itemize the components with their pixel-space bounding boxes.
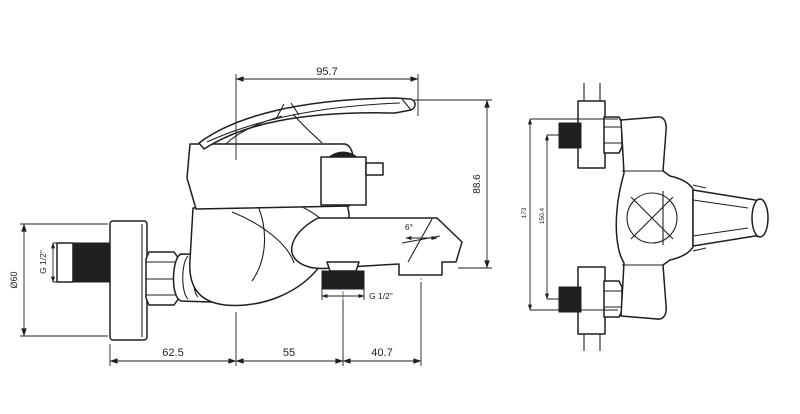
side-bottom-thread: [559, 287, 581, 312]
dim-center-to-outlet-label: 55: [283, 347, 295, 359]
side-view: [559, 83, 768, 351]
side-bottom-hex-nut: [604, 281, 622, 317]
faucet-technical-drawing: 95.7 88.6 Ø60 G 1/2" 62.5 55 40.7 G 1/2"…: [0, 0, 800, 414]
lever-handle: [199, 98, 415, 149]
side-handle-end: [752, 199, 768, 237]
inlet-nipple: [57, 243, 73, 282]
side-bottom-flange: [578, 267, 605, 334]
side-body: [616, 117, 693, 319]
dim-outlet-to-spout-label: 40.7: [371, 347, 392, 359]
shower-outlet-step: [327, 262, 359, 271]
dim-overall-height-label: 173: [521, 207, 528, 218]
side-top-thread: [559, 123, 581, 148]
shower-outlet-thread: [322, 271, 364, 289]
dim-height-label: 88.6: [472, 174, 483, 194]
dim-shower-outlet-thread-label: G 1/2": [369, 291, 393, 301]
inlet-thread: [73, 243, 110, 282]
diverter-knob: [321, 157, 366, 205]
front-view: [57, 98, 462, 340]
dim-150-extensions: [547, 135, 562, 299]
side-top-hex-nut: [604, 117, 622, 153]
dim-wall-to-center-label: 62.5: [162, 347, 183, 359]
dim-spout-angle-label: 6°: [405, 222, 413, 232]
diverter-knob-tab: [366, 163, 383, 175]
dim-handle-width-label: 95.7: [316, 66, 337, 78]
spout: [292, 218, 462, 275]
dim-flange-diameter-label: Ø60: [9, 271, 19, 288]
dim-inlet-spacing-label: 150.4: [539, 207, 546, 224]
drawing-canvas: 95.7 88.6 Ø60 G 1/2" 62.5 55 40.7 G 1/2"…: [0, 0, 800, 414]
dim-inlet-thread-label: G 1/2": [38, 250, 48, 274]
side-top-flange: [578, 101, 605, 168]
